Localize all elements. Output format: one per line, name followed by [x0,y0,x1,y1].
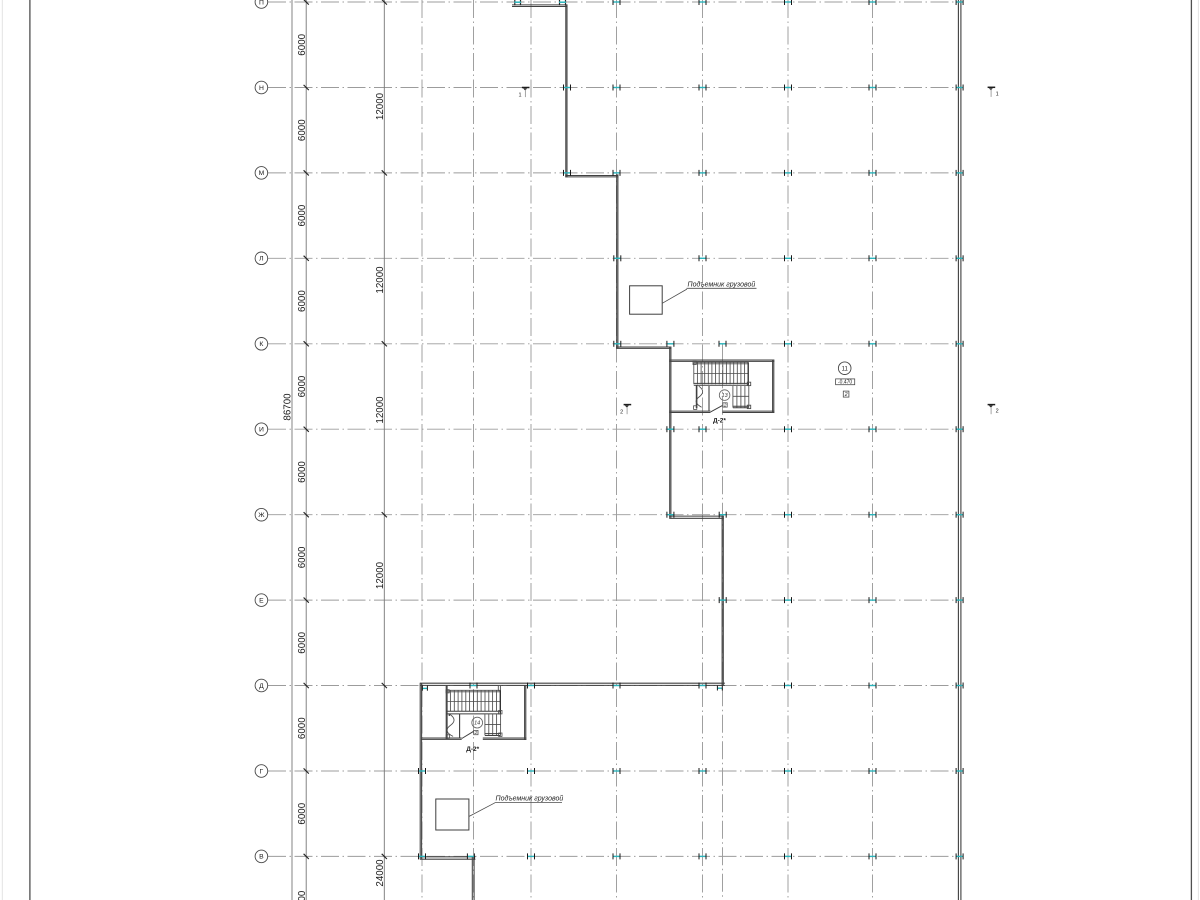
svg-text:6000: 6000 [297,375,308,397]
svg-text:6000: 6000 [297,461,308,483]
svg-text:М: М [259,170,265,177]
svg-text:24000: 24000 [375,859,386,887]
svg-text:И: И [259,427,264,434]
svg-text:6000: 6000 [297,33,308,55]
svg-text:Г: Г [260,768,264,775]
svg-text:6000: 6000 [297,204,308,226]
svg-text:12000: 12000 [375,266,386,294]
svg-text:П: П [259,0,264,6]
svg-text:2: 2 [723,402,727,407]
svg-text:Д: Д [259,683,264,690]
svg-text:К: К [259,341,263,348]
svg-text:6000: 6000 [297,119,308,141]
svg-text:6000: 6000 [297,631,308,653]
svg-text:6000: 6000 [297,290,308,312]
svg-text:Е: Е [259,597,264,604]
svg-text:6000: 6000 [297,802,308,824]
svg-text:11: 11 [842,367,849,373]
svg-text:2: 2 [474,730,478,735]
svg-text:13: 13 [722,393,729,399]
svg-text:В: В [259,854,264,861]
svg-text:Ж: Ж [258,512,265,519]
svg-text:2: 2 [620,409,623,415]
svg-text:6000: 6000 [297,717,308,739]
svg-text:12000: 12000 [375,396,386,424]
svg-text:86700: 86700 [283,393,294,421]
svg-text:Н: Н [259,85,264,92]
svg-text:Л: Л [259,256,263,263]
svg-text:12000: 12000 [375,561,386,589]
svg-text:6000: 6000 [297,546,308,568]
svg-text:6000: 6000 [297,890,308,900]
svg-text:1: 1 [518,92,521,98]
svg-text:Д-2*: Д-2* [713,417,726,424]
svg-text:Подъемник грузовой: Подъемник грузовой [688,280,756,288]
svg-text:2: 2 [996,409,999,415]
svg-text:2: 2 [844,392,848,398]
svg-text:1: 1 [996,91,999,97]
svg-text:12000: 12000 [375,92,386,120]
svg-text:Д-2*: Д-2* [466,746,479,753]
svg-text:Подъемник грузовой: Подъемник грузовой [496,795,564,803]
svg-text:14: 14 [474,721,480,727]
svg-text:-0.470: -0.470 [838,380,852,386]
